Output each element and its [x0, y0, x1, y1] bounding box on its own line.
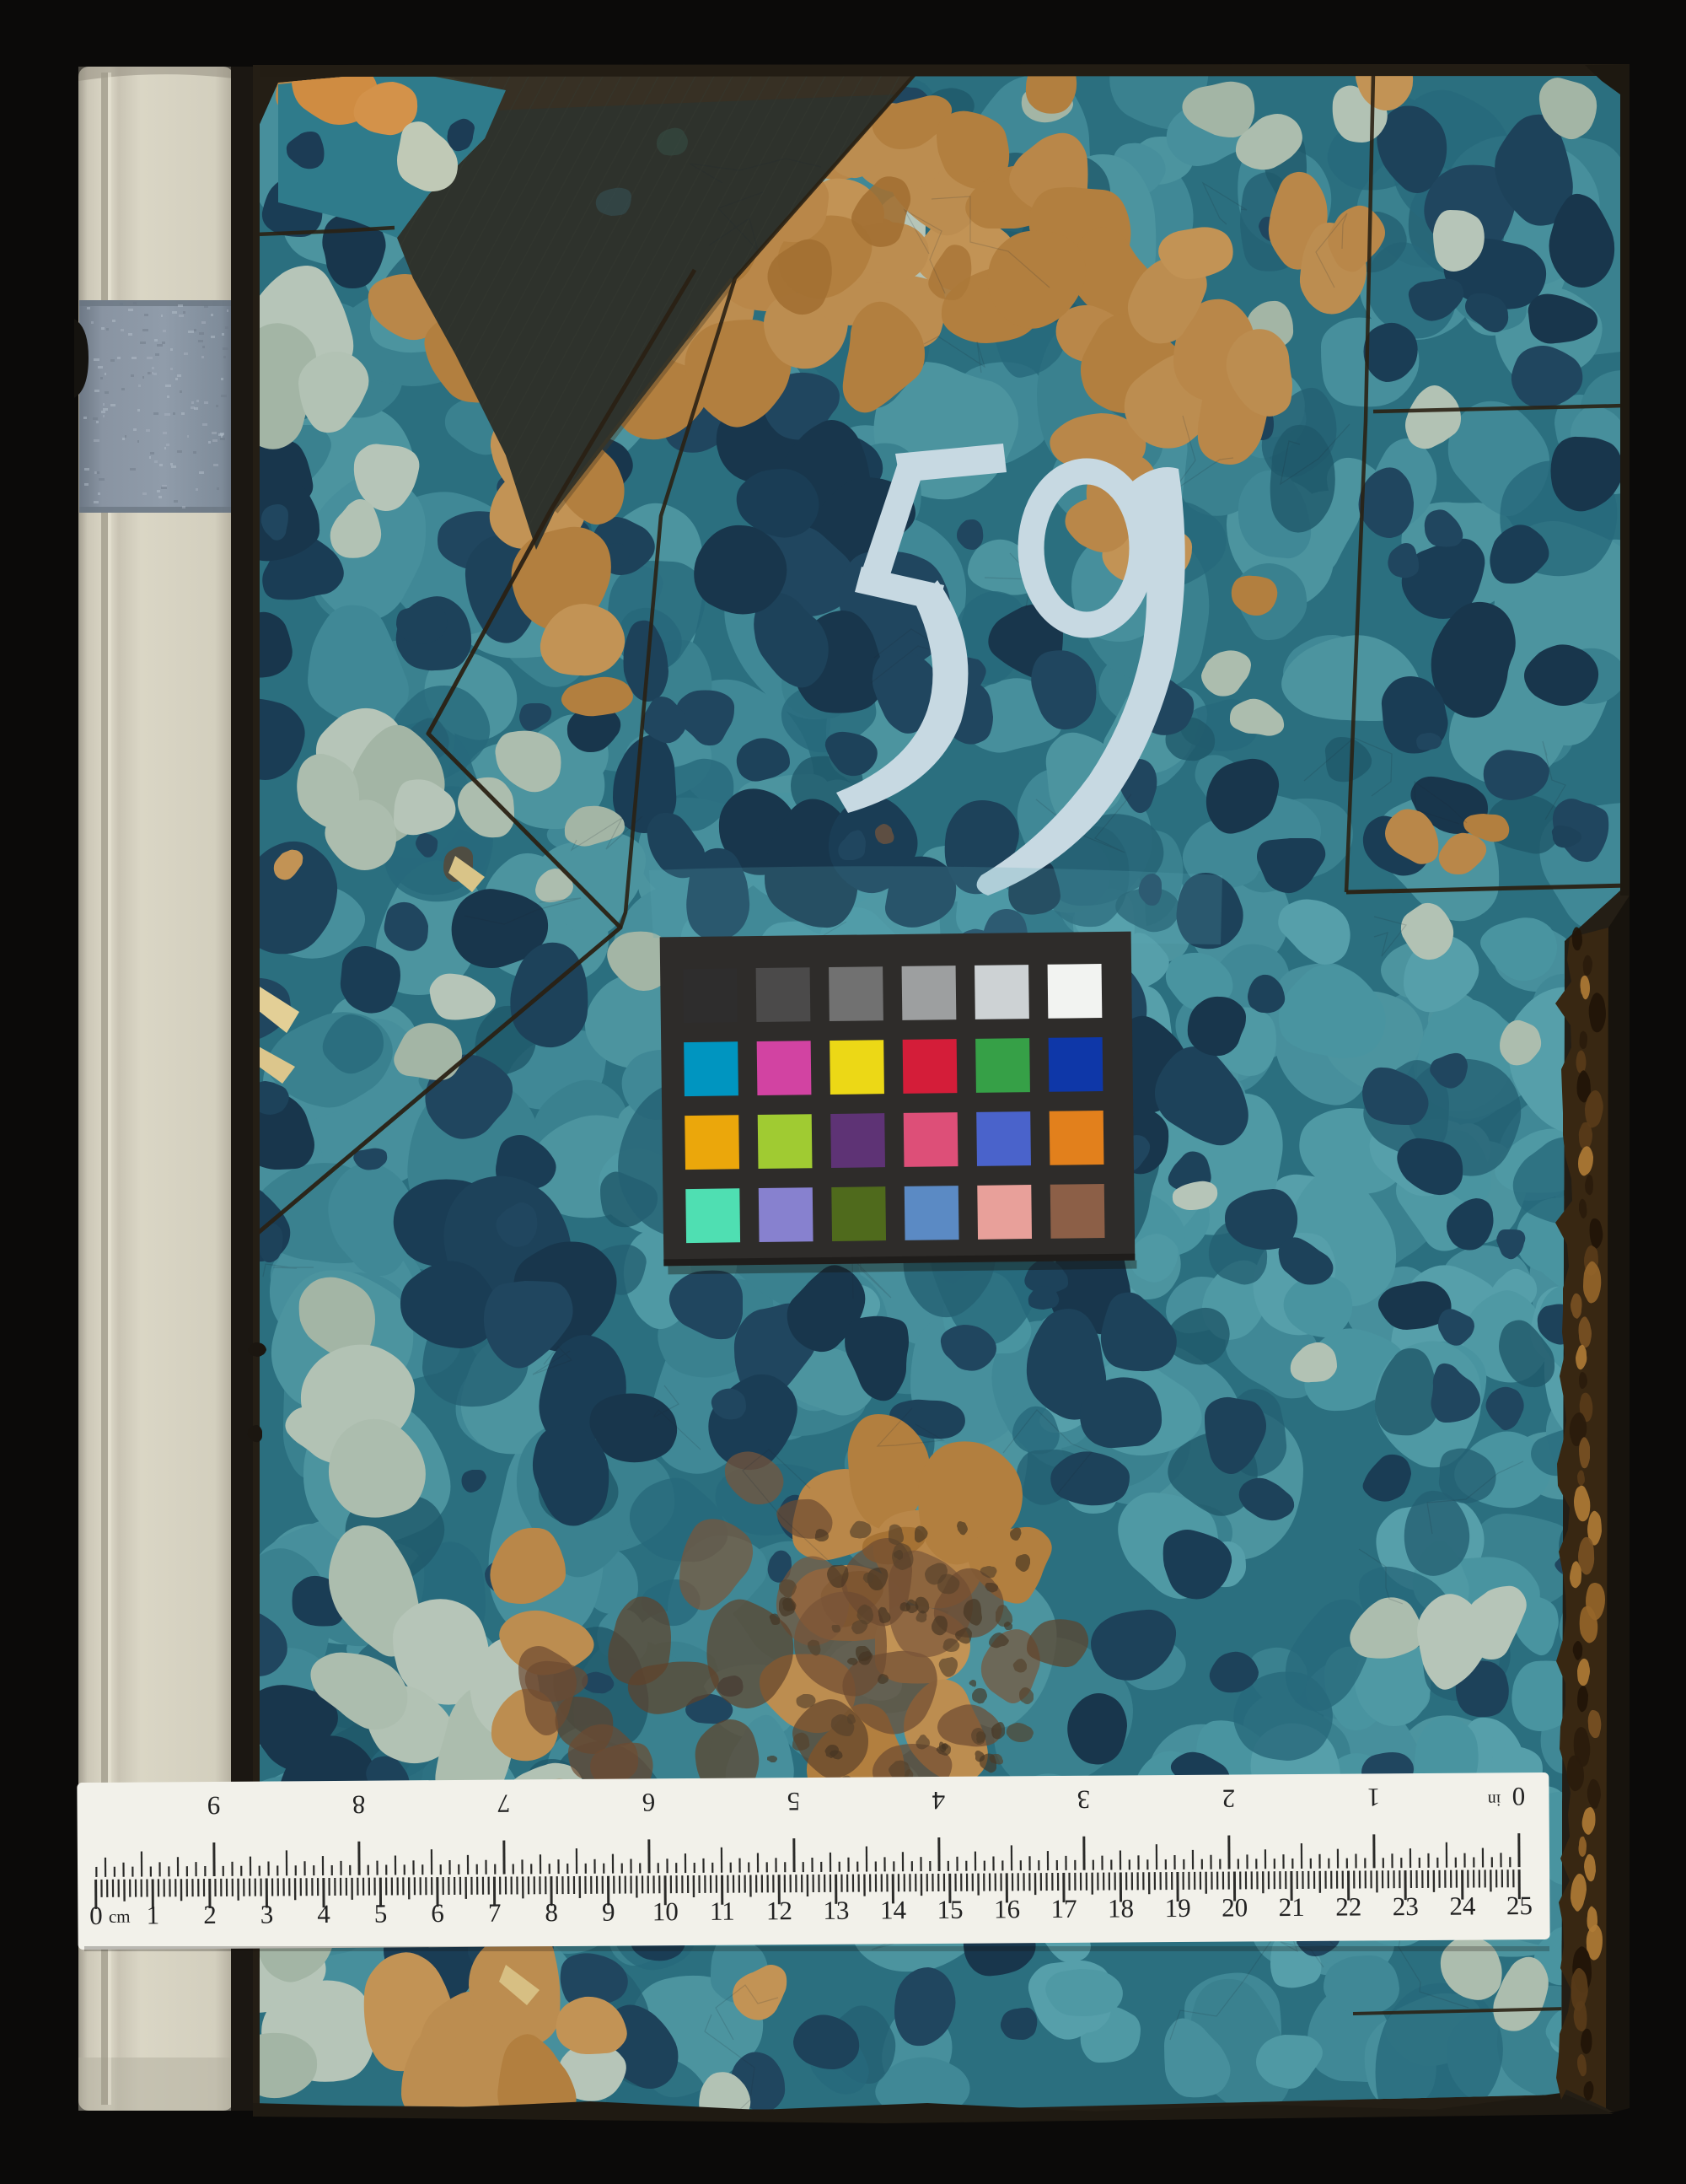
svg-text:21: 21 [1279, 1892, 1305, 1922]
svg-text:0: 0 [1512, 1782, 1526, 1811]
svg-text:24: 24 [1449, 1891, 1476, 1921]
svg-text:5: 5 [374, 1899, 388, 1928]
svg-text:8: 8 [352, 1790, 366, 1820]
svg-text:cm: cm [109, 1907, 131, 1927]
svg-text:1: 1 [1367, 1783, 1381, 1812]
svg-text:22: 22 [1335, 1891, 1361, 1921]
svg-text:9: 9 [207, 1791, 221, 1821]
svg-text:9: 9 [602, 1897, 615, 1927]
svg-text:18: 18 [1108, 1893, 1134, 1923]
svg-text:7: 7 [497, 1789, 511, 1819]
svg-text:16: 16 [994, 1894, 1020, 1923]
svg-text:3: 3 [260, 1899, 274, 1928]
svg-text:15: 15 [937, 1895, 963, 1924]
svg-text:5: 5 [787, 1787, 801, 1816]
svg-text:2: 2 [1222, 1784, 1236, 1814]
svg-text:17: 17 [1050, 1894, 1077, 1923]
svg-text:20: 20 [1222, 1892, 1248, 1922]
svg-text:6: 6 [642, 1788, 656, 1817]
svg-text:1: 1 [147, 1900, 160, 1929]
svg-text:6: 6 [431, 1898, 444, 1928]
svg-text:25: 25 [1506, 1891, 1533, 1920]
svg-text:14: 14 [880, 1895, 907, 1924]
svg-text:19: 19 [1165, 1893, 1191, 1923]
svg-text:0: 0 [89, 1901, 103, 1930]
svg-text:23: 23 [1393, 1891, 1419, 1921]
svg-text:4: 4 [317, 1899, 330, 1928]
svg-text:10: 10 [652, 1896, 679, 1926]
svg-text:3: 3 [1077, 1785, 1091, 1815]
svg-text:2: 2 [203, 1900, 217, 1929]
svg-text:8: 8 [545, 1897, 558, 1927]
svg-text:7: 7 [488, 1898, 502, 1928]
svg-text:in: in [1488, 1790, 1501, 1809]
svg-text:11: 11 [710, 1896, 735, 1926]
svg-text:13: 13 [823, 1896, 849, 1925]
svg-text:4: 4 [932, 1786, 945, 1816]
svg-text:12: 12 [766, 1896, 792, 1925]
